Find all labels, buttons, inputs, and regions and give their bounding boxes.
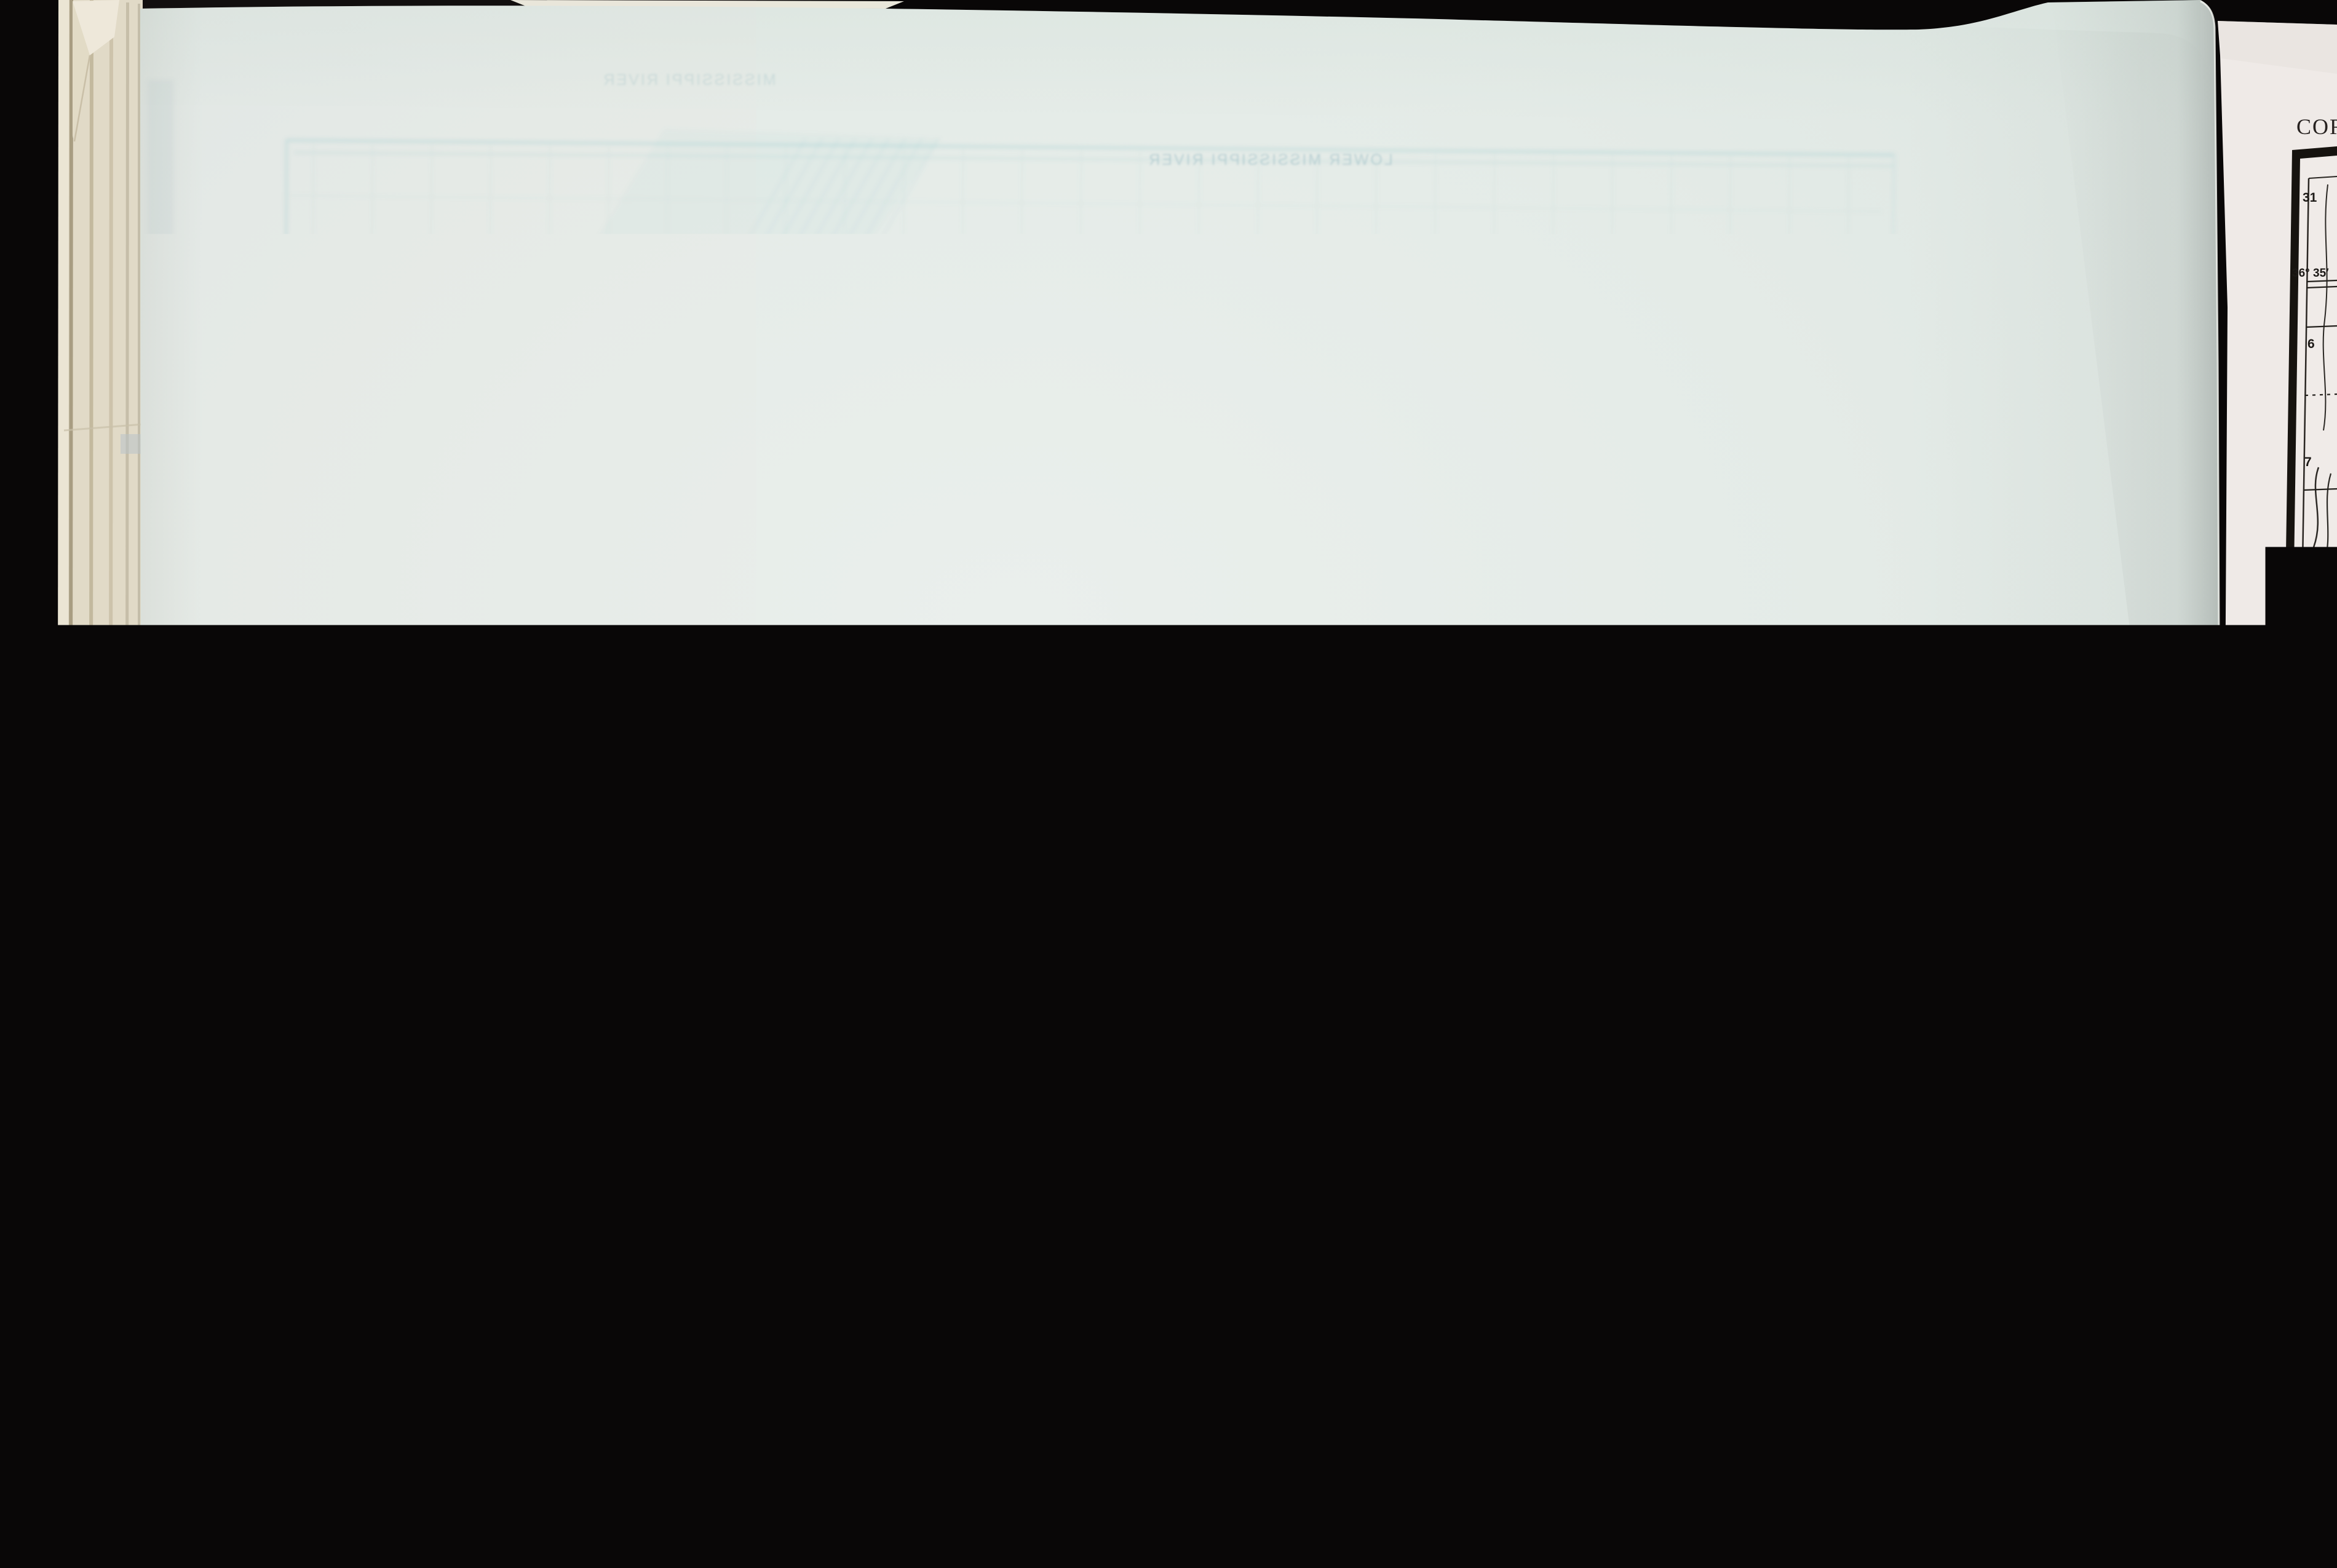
svg-text:34′ x 76′ x 5: 34′ x 76′ x 5 — [1729, 815, 1785, 824]
svg-text:INDUSTRIAL: INDUSTRIAL — [417, 673, 509, 687]
svg-text:NORANDA MANUFACTURING, LTD: NORANDA MANUFACTURING, LTD — [459, 911, 678, 925]
svg-text:2: 2 — [588, 735, 596, 751]
svg-text:36° 35′: 36° 35′ — [2292, 267, 2329, 280]
svg-text:3.: 3. — [1056, 577, 1066, 590]
svg-text:DITCH: DITCH — [2283, 764, 2304, 772]
svg-text:CATES CASTING FIELD: CATES CASTING FIELD — [1801, 869, 1905, 882]
svg-text:LOWER MISSISSIPPI RIVER: LOWER MISSISSIPPI RIVER — [1147, 151, 1393, 168]
svg-text:2.: 2. — [429, 912, 442, 925]
svg-text:Derrick Boat: Derrick Boat — [1732, 801, 1787, 810]
svg-text:4.: 4. — [1055, 596, 1065, 609]
svg-text:ST.: ST. — [1125, 707, 1141, 716]
svg-text:6: 6 — [2307, 337, 2315, 351]
svg-text:2: 2 — [1161, 785, 1168, 799]
svg-text:4: 4 — [875, 841, 882, 854]
svg-text:MO: MO — [926, 654, 953, 670]
svg-text:19: 19 — [2298, 1324, 2312, 1339]
svg-text:MISSISSIPPI RIVER: MISSISSIPPI RIVER — [601, 71, 776, 89]
svg-text:SINCLAIR OIL CO.: SINCLAIR OIL CO. — [1084, 539, 1195, 552]
svg-text:2000 FT.: 2000 FT. — [1207, 911, 1263, 924]
svg-text:FLOW: FLOW — [1674, 703, 1705, 713]
svg-text:(ALUMINUM PLANT): (ALUMINUM PLANT) — [473, 925, 601, 939]
svg-text:MAIN: MAIN — [1325, 633, 1335, 662]
svg-text:RIGHT BANK MILE 888.2 - 889.3: RIGHT BANK MILE 888.2 - 889.3 — [1046, 850, 1299, 868]
svg-text:3: 3 — [960, 804, 967, 818]
svg-text:18: 18 — [2301, 585, 2316, 600]
svg-text:0: 0 — [1105, 911, 1112, 924]
svg-text:1000 FT.: 1000 FT. — [566, 943, 614, 955]
svg-text:ST JUDE: ST JUDE — [430, 656, 496, 670]
svg-text:1000 FT.: 1000 FT. — [1823, 972, 1884, 986]
svg-text:PARK: PARK — [441, 691, 486, 704]
svg-text:1: 1 — [1391, 753, 1398, 766]
svg-text:6: 6 — [2305, 963, 2312, 977]
svg-text:POWER PLANT: POWER PLANT — [474, 898, 569, 913]
svg-text:1: 1 — [538, 635, 546, 651]
svg-text:31: 31 — [2303, 191, 2317, 205]
svg-text:18: 18 — [2299, 1187, 2314, 1201]
svg-text:1.: 1. — [1057, 539, 1068, 552]
svg-text:NO 52: NO 52 — [2289, 885, 2307, 892]
svg-text:30: 30 — [2295, 817, 2309, 831]
svg-text:LEFT BANK MILE 900.6: LEFT BANK MILE 900.6 — [1697, 909, 1911, 927]
svg-text:ST.: ST. — [1338, 694, 1347, 710]
svg-text:1.: 1. — [432, 885, 445, 898]
svg-text:NEW MADRID, MO.: NEW MADRID, MO. — [507, 865, 622, 879]
svg-text:7: 7 — [2304, 455, 2312, 469]
svg-text:TAYLOR SAND & GRAVEL CO.: TAYLOR SAND & GRAVEL CO. — [1084, 596, 1272, 609]
svg-text:RIGHT BANK MILE 884-885: RIGHT BANK MILE 884-885 — [459, 841, 667, 860]
svg-text:MILL: MILL — [1111, 667, 1140, 677]
svg-text:TENN: TENN — [1641, 858, 1696, 884]
svg-text:Prepared under the direction o: Prepared under the direction of the Pres… — [522, 1454, 1023, 1470]
svg-text:CORR: CORR — [2296, 114, 2337, 139]
svg-text:0: 0 — [1748, 969, 1755, 982]
svg-text:REVET: REVET — [1213, 767, 1249, 777]
svg-text:CATES CASTING FIELD: CATES CASTING FIELD — [1714, 950, 1887, 965]
svg-text:19: 19 — [2299, 708, 2314, 723]
svg-text:CATES, TENN.: CATES, TENN. — [1751, 931, 1859, 946]
svg-text:36° 30′: 36° 30′ — [2287, 897, 2323, 909]
svg-text:MAP NO. 4: MAP NO. 4 — [210, 1359, 403, 1389]
svg-text:RALPH ANDERSON LUMBER CO.: RALPH ANDERSON LUMBER CO. — [1084, 558, 1288, 571]
svg-text:CARGILL GRAIN TERMINAL: CARGILL GRAIN TERMINAL — [1084, 577, 1257, 590]
svg-text:0: 0 — [536, 943, 542, 955]
svg-text:2.: 2. — [1055, 558, 1066, 571]
svg-text:CITY OF NEW MADRID: CITY OF NEW MADRID — [459, 884, 601, 898]
svg-text:ST.: ST. — [1251, 663, 1267, 673]
svg-text:NEW MADRID: NEW MADRID — [989, 694, 1069, 708]
svg-text:7: 7 — [2304, 1091, 2311, 1106]
svg-text:NEW MADRID, MO.: NEW MADRID, MO. — [1119, 872, 1227, 886]
